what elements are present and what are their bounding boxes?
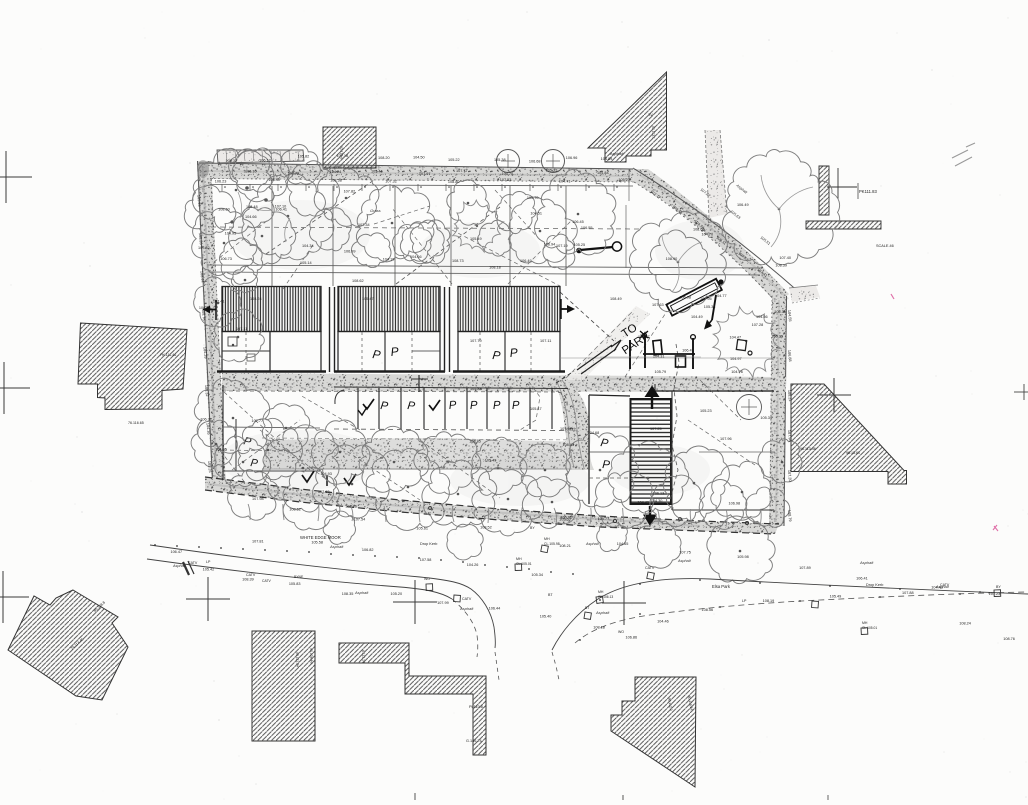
- svg-text:107.95: 107.95: [700, 297, 712, 301]
- svg-text:104.93: 104.93: [320, 472, 332, 476]
- svg-text:107.40: 107.40: [779, 256, 791, 260]
- svg-text:105.34: 105.34: [531, 573, 543, 577]
- svg-text:108.18: 108.18: [593, 625, 605, 629]
- svg-text:107.11: 107.11: [236, 327, 247, 331]
- svg-text:104.70: 104.70: [502, 172, 514, 176]
- svg-text:105.83: 105.83: [289, 582, 301, 586]
- svg-text:104.24: 104.24: [330, 170, 342, 174]
- svg-text:105.47: 105.47: [362, 297, 374, 301]
- svg-text:Asphalt: Asphalt: [595, 610, 610, 615]
- svg-text:108.35: 108.35: [469, 439, 481, 443]
- svg-text:104.77: 104.77: [715, 294, 727, 298]
- svg-text:106.45: 106.45: [572, 220, 584, 224]
- svg-text:105.27: 105.27: [618, 178, 630, 182]
- svg-text:104.97: 104.97: [730, 357, 742, 361]
- svg-text:107.34: 107.34: [358, 223, 370, 227]
- svg-text:106.82: 106.82: [362, 548, 374, 552]
- svg-text:Asphalt: Asphalt: [354, 590, 369, 595]
- svg-text:105.38: 105.38: [704, 305, 716, 309]
- svg-text:90.111.34: 90.111.34: [295, 652, 300, 667]
- svg-text:Asphalt: Asphalt: [172, 564, 187, 568]
- svg-text:107.28: 107.28: [752, 323, 764, 327]
- svg-text:105.49: 105.49: [485, 458, 497, 462]
- svg-text:107.41: 107.41: [213, 300, 225, 304]
- svg-text:Drop Kerb: Drop Kerb: [866, 583, 883, 587]
- svg-text:96.13.61: 96.13.61: [846, 451, 860, 455]
- svg-text:105.41: 105.41: [371, 170, 383, 174]
- svg-text:104.30: 104.30: [651, 499, 663, 503]
- svg-text:108.76: 108.76: [1003, 637, 1015, 641]
- svg-text:CL.105.01: CL.105.01: [862, 626, 877, 630]
- svg-text:104.89: 104.89: [601, 157, 613, 161]
- svg-text:107.27: 107.27: [638, 335, 650, 339]
- svg-text:90.108.46: 90.108.46: [309, 648, 314, 664]
- svg-text:108.83: 108.83: [562, 443, 574, 447]
- svg-text:P: P: [602, 459, 611, 472]
- svg-text:104.65: 104.65: [617, 542, 629, 546]
- svg-text:106.10: 106.10: [245, 170, 257, 174]
- svg-text:106.41: 106.41: [275, 208, 287, 212]
- svg-text:104.76: 104.76: [731, 370, 743, 374]
- svg-text:P: P: [448, 399, 457, 412]
- svg-text:105.79: 105.79: [655, 370, 667, 374]
- svg-text:107.98: 107.98: [252, 497, 264, 501]
- svg-text:WO: WO: [618, 630, 624, 634]
- svg-text:Drop Kerb: Drop Kerb: [420, 542, 437, 546]
- svg-text:108.60: 108.60: [218, 207, 230, 211]
- svg-text:107.70: 107.70: [470, 339, 482, 343]
- svg-text:105.38: 105.38: [494, 158, 506, 162]
- svg-text:108.35: 108.35: [342, 592, 354, 596]
- svg-text:106.13: 106.13: [653, 492, 665, 496]
- svg-text:105.25: 105.25: [771, 335, 783, 339]
- svg-text:MH: MH: [862, 621, 868, 625]
- svg-text:P: P: [470, 400, 478, 412]
- svg-text:105.25: 105.25: [574, 243, 586, 247]
- svg-text:BY: BY: [996, 585, 1001, 589]
- svg-text:107.12: 107.12: [564, 427, 576, 431]
- svg-text:107.54: 107.54: [354, 518, 366, 522]
- svg-text:Elsa Park: Elsa Park: [712, 584, 731, 589]
- svg-text:107.82: 107.82: [344, 190, 356, 194]
- svg-text:105.58: 105.58: [311, 541, 323, 545]
- svg-text:107.25: 107.25: [650, 427, 662, 431]
- svg-text:CATV: CATV: [246, 573, 256, 577]
- svg-text:104.56: 104.56: [756, 315, 768, 319]
- svg-text:96.113.46: 96.113.46: [800, 447, 816, 451]
- svg-text:105.98: 105.98: [737, 555, 749, 559]
- svg-text:LP: LP: [206, 560, 211, 564]
- svg-text:106.32: 106.32: [200, 417, 212, 421]
- svg-text:106.23: 106.23: [215, 179, 227, 183]
- svg-text:104.66: 104.66: [410, 255, 422, 259]
- svg-text:107.97: 107.97: [419, 172, 431, 176]
- svg-text:108.21: 108.21: [559, 544, 571, 548]
- svg-text:P: P: [509, 345, 518, 360]
- svg-text:104.51: 104.51: [530, 212, 542, 216]
- svg-text:106.55: 106.55: [581, 226, 593, 230]
- svg-text:107.63: 107.63: [652, 303, 664, 307]
- svg-text:105.14: 105.14: [300, 261, 312, 265]
- svg-text:Asphalt: Asphalt: [677, 559, 692, 563]
- svg-text:108.90: 108.90: [666, 257, 678, 261]
- svg-text:108.73: 108.73: [452, 259, 464, 263]
- svg-text:104.68: 104.68: [588, 431, 600, 435]
- svg-text:MH: MH: [516, 557, 522, 561]
- svg-text:107.88: 107.88: [902, 591, 914, 595]
- svg-text:Grass: Grass: [370, 208, 381, 213]
- svg-text:107.58: 107.58: [420, 558, 432, 562]
- svg-text:107.77: 107.77: [251, 419, 263, 423]
- svg-text:BT: BT: [585, 606, 589, 610]
- svg-text:107.77: 107.77: [456, 169, 468, 173]
- svg-text:105.35: 105.35: [774, 310, 786, 314]
- svg-text:106.79: 106.79: [199, 306, 211, 310]
- svg-text:107.89: 107.89: [799, 566, 811, 570]
- svg-text:107.11: 107.11: [540, 339, 551, 343]
- svg-text:107.23: 107.23: [989, 592, 1001, 596]
- svg-text:BT: BT: [548, 593, 553, 597]
- svg-text:Asphalt: Asphalt: [329, 544, 344, 549]
- svg-text:105.20: 105.20: [391, 592, 403, 596]
- svg-text:Asphalt: Asphalt: [859, 560, 874, 565]
- svg-text:108.39: 108.39: [775, 264, 787, 268]
- svg-text:P: P: [493, 400, 501, 412]
- svg-text:104.35: 104.35: [215, 447, 227, 451]
- svg-text:105.91: 105.91: [560, 515, 572, 519]
- svg-text:105.34: 105.34: [760, 416, 772, 420]
- svg-text:WHITE EDGE MOOR: WHITE EDGE MOOR: [300, 535, 341, 540]
- svg-text:108.62: 108.62: [352, 279, 364, 283]
- svg-text:108.24: 108.24: [250, 297, 262, 301]
- svg-text:CATV: CATV: [645, 566, 655, 570]
- svg-text:106.49: 106.49: [737, 203, 749, 207]
- svg-text:92.110.6: 92.110.6: [339, 146, 343, 160]
- svg-text:CL.106.13: CL.106.13: [598, 595, 613, 599]
- svg-text:108.18: 108.18: [489, 265, 501, 269]
- svg-text:PK.111.46: PK.111.46: [160, 353, 176, 357]
- svg-text:105.49: 105.49: [470, 237, 482, 241]
- svg-text:108.20: 108.20: [378, 156, 390, 160]
- svg-text:106.47: 106.47: [170, 550, 182, 554]
- svg-text:107.81: 107.81: [252, 540, 264, 544]
- svg-text:107.19: 107.19: [556, 244, 568, 248]
- svg-text:105.61: 105.61: [416, 527, 428, 531]
- svg-text:106.49: 106.49: [520, 259, 532, 263]
- svg-text:108.65: 108.65: [693, 228, 705, 232]
- svg-text:76.116.65: 76.116.65: [128, 421, 144, 425]
- svg-text:107.75: 107.75: [679, 550, 691, 554]
- svg-text:Asphalt: Asphalt: [459, 606, 474, 611]
- svg-text:PK111.83: PK111.83: [859, 189, 877, 194]
- svg-text:105.88: 105.88: [470, 387, 482, 391]
- svg-text:Asphalt: Asphalt: [585, 542, 600, 546]
- svg-text:108.19: 108.19: [763, 599, 775, 603]
- svg-text:WO: WO: [424, 577, 430, 581]
- svg-text:106.44: 106.44: [489, 607, 501, 611]
- svg-text:108.52: 108.52: [480, 526, 492, 530]
- svg-text:92.113.1: 92.113.1: [651, 126, 655, 139]
- svg-text:107.63: 107.63: [318, 490, 330, 494]
- svg-text:P: P: [512, 400, 520, 412]
- svg-text:104.46: 104.46: [657, 620, 669, 624]
- svg-text:106.49: 106.49: [682, 348, 694, 352]
- svg-text:104.95: 104.95: [225, 232, 237, 236]
- svg-text:MH: MH: [544, 537, 550, 541]
- svg-text:107.99: 107.99: [437, 601, 449, 605]
- svg-text:108.56: 108.56: [701, 608, 713, 612]
- svg-text:106.94: 106.94: [544, 243, 556, 247]
- svg-text:106.41: 106.41: [856, 576, 868, 580]
- svg-text:105.22: 105.22: [448, 158, 460, 162]
- svg-text:P: P: [492, 348, 501, 363]
- svg-text:8.113.14: 8.113.14: [361, 650, 365, 663]
- svg-text:106.98: 106.98: [728, 501, 740, 505]
- svg-text:106.73: 106.73: [220, 257, 232, 261]
- svg-text:PL110.8: PL110.8: [469, 705, 483, 709]
- svg-text:104.84: 104.84: [597, 171, 609, 175]
- svg-text:107.79: 107.79: [288, 171, 300, 175]
- svg-text:107.53: 107.53: [500, 178, 512, 182]
- svg-text:106.68: 106.68: [529, 159, 541, 163]
- svg-text:106.96: 106.96: [566, 156, 578, 160]
- svg-text:105.77: 105.77: [598, 517, 610, 521]
- svg-text:CATV: CATV: [940, 583, 950, 587]
- svg-text:104.50: 104.50: [413, 156, 425, 160]
- svg-text:CL.105.98: CL.105.98: [544, 542, 560, 546]
- svg-text:104.49: 104.49: [691, 315, 703, 319]
- svg-text:P: P: [390, 344, 399, 359]
- svg-text:105.82: 105.82: [298, 154, 310, 158]
- svg-text:105.49: 105.49: [830, 594, 842, 598]
- svg-text:108.49: 108.49: [610, 297, 622, 301]
- svg-text:108.38: 108.38: [330, 178, 342, 182]
- svg-text:108.48: 108.48: [246, 205, 258, 209]
- svg-text:CL.105.01: CL.105.01: [516, 562, 532, 566]
- svg-text:107.86: 107.86: [345, 505, 357, 509]
- svg-text:104.31: 104.31: [653, 354, 665, 358]
- svg-text:108.32: 108.32: [225, 159, 237, 163]
- svg-text:104.19: 104.19: [383, 258, 395, 262]
- svg-text:MH: MH: [598, 590, 604, 594]
- svg-text:SV: SV: [648, 113, 653, 117]
- svg-text:BY: BY: [530, 526, 535, 530]
- svg-text:106.86: 106.86: [625, 636, 637, 640]
- svg-text:108.39: 108.39: [242, 577, 254, 581]
- svg-text:G.146.74: G.146.74: [466, 739, 482, 743]
- svg-text:105.23: 105.23: [700, 409, 712, 413]
- svg-text:105.47: 105.47: [530, 407, 542, 411]
- svg-text:106.99: 106.99: [344, 250, 356, 254]
- svg-text:107.82: 107.82: [198, 246, 210, 250]
- svg-text:106.12: 106.12: [259, 159, 271, 163]
- svg-text:108.62: 108.62: [289, 508, 301, 512]
- svg-text:107.96: 107.96: [720, 437, 732, 441]
- svg-text:104.34: 104.34: [302, 244, 314, 248]
- svg-text:104.49: 104.49: [637, 500, 649, 504]
- svg-text:Asphalt: Asphalt: [609, 151, 624, 156]
- svg-text:CATV: CATV: [262, 579, 272, 583]
- svg-text:108.24: 108.24: [959, 622, 971, 626]
- svg-text:105.70: 105.70: [527, 196, 539, 200]
- svg-text:LP: LP: [742, 599, 747, 603]
- svg-text:105.40: 105.40: [540, 615, 552, 619]
- svg-text:104.26: 104.26: [467, 563, 479, 567]
- svg-text:CATV: CATV: [188, 561, 198, 565]
- svg-text:105.42: 105.42: [203, 568, 215, 572]
- svg-text:107.32: 107.32: [385, 180, 397, 184]
- svg-text:SCALE.46: SCALE.46: [876, 244, 894, 248]
- svg-text:106.98: 106.98: [679, 295, 691, 299]
- svg-text:CATV: CATV: [462, 597, 472, 601]
- svg-text:104.47: 104.47: [729, 335, 741, 339]
- svg-text:104.66: 104.66: [245, 215, 257, 219]
- svg-text:108.80: 108.80: [448, 180, 460, 184]
- svg-text:104.70: 104.70: [702, 232, 714, 236]
- svg-text:104.71: 104.71: [559, 179, 571, 183]
- svg-text:108.40: 108.40: [268, 178, 280, 182]
- svg-text:BYNE: BYNE: [294, 575, 304, 579]
- svg-text:105.32: 105.32: [546, 168, 558, 172]
